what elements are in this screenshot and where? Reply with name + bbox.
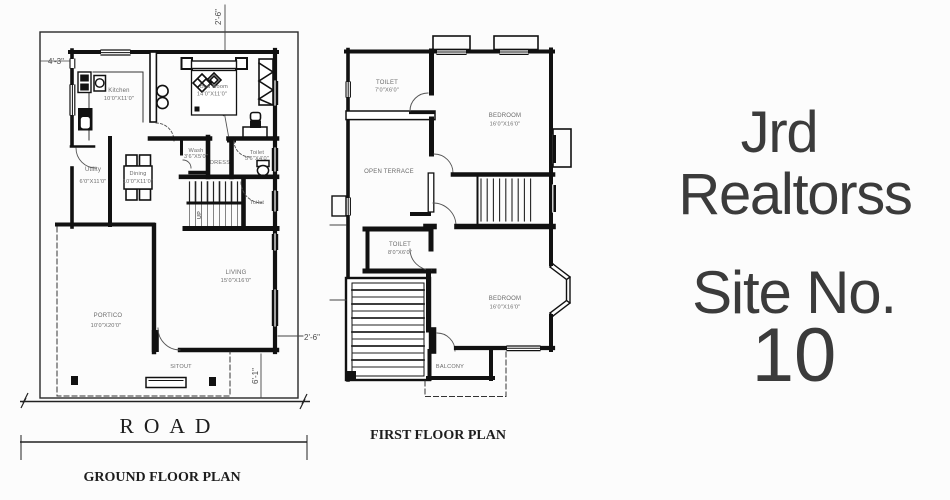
svg-text:ROAD: ROAD	[120, 414, 221, 438]
svg-text:Dining: Dining	[129, 171, 146, 177]
svg-text:10'0"X11'0": 10'0"X11'0"	[104, 96, 134, 102]
svg-text:2'-6": 2'-6"	[214, 9, 223, 25]
svg-text:BALCONY: BALCONY	[436, 364, 464, 370]
svg-text:Bed Room: Bed Room	[200, 84, 228, 90]
svg-text:BEDROOM: BEDROOM	[489, 113, 521, 119]
svg-text:TOILET: TOILET	[376, 80, 398, 86]
svg-text:Jrd: Jrd	[741, 100, 818, 165]
svg-text:SITOUT: SITOUT	[170, 364, 192, 370]
svg-text:14'0"X11'0": 14'0"X11'0"	[197, 92, 227, 98]
svg-text:15'0"X16'0": 15'0"X16'0"	[221, 278, 252, 284]
svg-text:TOILET: TOILET	[389, 242, 411, 248]
svg-text:16'0"X16'0": 16'0"X16'0"	[490, 122, 521, 128]
svg-text:4'-3": 4'-3"	[48, 57, 64, 66]
svg-text:PORTICO: PORTICO	[94, 313, 123, 319]
svg-text:Utility: Utility	[85, 167, 101, 173]
svg-text:Realtorss: Realtorss	[678, 162, 911, 227]
svg-text:7'0"X6'0": 7'0"X6'0"	[375, 88, 399, 94]
svg-text:6'0"X11'0": 6'0"X11'0"	[80, 179, 107, 185]
svg-text:10'0"X20'0": 10'0"X20'0"	[91, 323, 122, 329]
svg-text:UP: UP	[197, 211, 203, 219]
svg-text:10'0"X11'0": 10'0"X11'0"	[123, 179, 153, 185]
svg-text:GROUND FLOOR PLAN: GROUND FLOOR PLAN	[83, 470, 240, 485]
svg-text:OPEN TERRACE: OPEN TERRACE	[364, 169, 414, 175]
svg-text:Toilet: Toilet	[250, 200, 265, 206]
svg-text:Kitchen: Kitchen	[108, 88, 129, 94]
svg-text:10: 10	[752, 313, 837, 398]
svg-text:LIVING: LIVING	[226, 270, 247, 276]
svg-text:6'-1": 6'-1"	[251, 368, 260, 384]
svg-text:16'0"X16'0": 16'0"X16'0"	[490, 305, 521, 311]
svg-text:BEDROOM: BEDROOM	[489, 296, 521, 302]
svg-text:8'0"X6'0": 8'0"X6'0"	[388, 250, 412, 256]
svg-text:3'6"X5'0": 3'6"X5'0"	[184, 154, 208, 160]
svg-text:2'-6": 2'-6"	[304, 333, 320, 342]
svg-text:FIRST FLOOR PLAN: FIRST FLOOR PLAN	[370, 428, 506, 443]
svg-text:DRESS: DRESS	[210, 160, 230, 166]
